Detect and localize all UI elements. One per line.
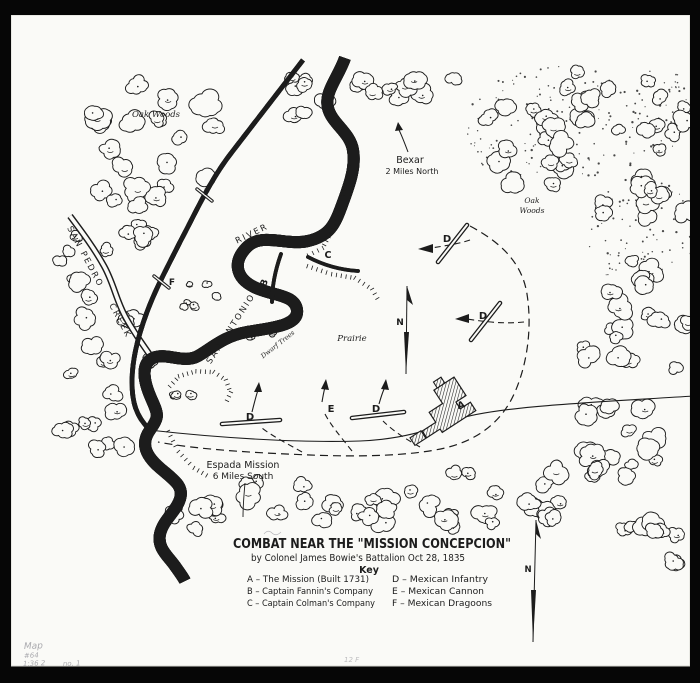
stipple-dot bbox=[558, 66, 559, 67]
stipple-dot bbox=[477, 151, 479, 153]
stipple-dot bbox=[649, 229, 651, 231]
tree-trunk-dot bbox=[619, 308, 621, 310]
tree-trunk-dot bbox=[206, 282, 208, 284]
tree-trunk-dot bbox=[647, 313, 649, 315]
tree-trunk-dot bbox=[304, 500, 306, 502]
tree-trunk-dot bbox=[592, 455, 594, 457]
map-scan: Oak Woods Oak Woods Bexar 2 Miles North … bbox=[0, 0, 700, 683]
key-item-d: D – Mexican Infantry bbox=[392, 575, 489, 585]
tree-blob bbox=[404, 485, 417, 498]
stipple-dot bbox=[540, 166, 542, 168]
tree-trunk-dot bbox=[552, 518, 554, 520]
stipple-dot bbox=[579, 132, 581, 134]
tree-trunk-dot bbox=[295, 85, 297, 87]
stipple-dot bbox=[632, 111, 634, 113]
stipple-dot bbox=[536, 76, 538, 78]
stipple-dot bbox=[671, 262, 672, 263]
tree-trunk-dot bbox=[382, 498, 384, 500]
stipple-dot bbox=[672, 191, 673, 192]
stipple-dot bbox=[496, 97, 497, 98]
stipple-dot bbox=[569, 107, 571, 109]
stipple-dot bbox=[682, 200, 684, 202]
stipple-dot bbox=[597, 171, 599, 173]
tree-trunk-dot bbox=[553, 183, 555, 185]
tree-blob bbox=[404, 72, 428, 90]
stipple-dot bbox=[474, 142, 475, 143]
stipple-dot bbox=[606, 274, 607, 275]
tree-trunk-dot bbox=[588, 357, 590, 359]
stipple-dot bbox=[537, 96, 538, 97]
tree-trunk-dot bbox=[484, 513, 486, 515]
stipple-dot bbox=[582, 166, 584, 168]
tree-trunk-dot bbox=[123, 446, 125, 448]
tree-trunk-dot bbox=[655, 126, 657, 128]
stipple-dot bbox=[636, 90, 638, 92]
tree-trunk-dot bbox=[110, 393, 112, 395]
stipple-dot bbox=[524, 76, 526, 78]
stipple-dot bbox=[547, 67, 549, 69]
stipple-dot bbox=[512, 80, 513, 81]
stipple-dot bbox=[641, 258, 643, 260]
stipple-dot bbox=[468, 127, 469, 128]
border-left bbox=[0, 0, 11, 683]
stipple-dot bbox=[625, 143, 627, 145]
tree-trunk-dot bbox=[659, 98, 661, 100]
tree-trunk-dot bbox=[677, 535, 679, 537]
tree-trunk-dot bbox=[70, 373, 72, 375]
stipple-dot bbox=[598, 162, 600, 164]
stipple-dot bbox=[489, 147, 490, 148]
stipple-dot bbox=[480, 138, 482, 140]
pencil-note-map: Map bbox=[24, 641, 44, 652]
pencil-note-no1: no. 1 bbox=[63, 659, 81, 668]
tree-trunk-dot bbox=[278, 513, 280, 515]
stipple-dot bbox=[537, 172, 538, 173]
marker-d2: D bbox=[479, 311, 487, 322]
tree-trunk-dot bbox=[492, 521, 494, 523]
stipple-dot bbox=[562, 99, 564, 101]
tree-blob bbox=[81, 337, 103, 355]
stipple-dot bbox=[615, 269, 616, 270]
stipple-dot bbox=[677, 74, 678, 75]
stipple-dot bbox=[622, 219, 624, 221]
stipple-dot bbox=[619, 262, 621, 264]
tree-trunk-dot bbox=[544, 483, 546, 485]
stipple-dot bbox=[565, 120, 567, 122]
tree-trunk-dot bbox=[84, 423, 86, 425]
border-top bbox=[0, 0, 700, 15]
tree-trunk-dot bbox=[364, 81, 366, 83]
stipple-dot bbox=[548, 85, 550, 87]
tree-trunk-dot bbox=[644, 409, 646, 411]
tree-trunk-dot bbox=[115, 199, 117, 201]
stipple-dot bbox=[661, 207, 663, 209]
stipple-dot bbox=[682, 247, 684, 249]
tree-trunk-dot bbox=[508, 150, 510, 152]
stipple-dot bbox=[602, 128, 604, 130]
tree-trunk-dot bbox=[683, 108, 685, 110]
tree-trunk-dot bbox=[672, 560, 674, 562]
tree-trunk-dot bbox=[686, 120, 688, 122]
stipple-dot bbox=[619, 201, 621, 203]
stipple-dot bbox=[650, 145, 652, 147]
stipple-dot bbox=[633, 153, 634, 154]
tree-trunk-dot bbox=[155, 197, 157, 199]
stipple-dot bbox=[625, 248, 626, 249]
stipple-dot bbox=[622, 199, 624, 201]
key-item-e: E – Mexican Cannon bbox=[392, 587, 484, 597]
stipple-dot bbox=[642, 241, 644, 243]
marker-e: E bbox=[328, 404, 335, 415]
stipple-dot bbox=[649, 71, 650, 72]
stipple-dot bbox=[662, 230, 664, 232]
tree-trunk-dot bbox=[97, 449, 99, 451]
marker-d1: D bbox=[443, 234, 451, 245]
tree-blob bbox=[202, 281, 212, 288]
stipple-dot bbox=[675, 86, 676, 87]
stipple-dot bbox=[675, 74, 677, 76]
stipple-dot bbox=[679, 194, 680, 195]
stipple-dot bbox=[661, 182, 663, 184]
stipple-dot bbox=[603, 154, 604, 155]
stipple-dot bbox=[598, 109, 599, 110]
tree-trunk-dot bbox=[166, 162, 168, 164]
tree-trunk-dot bbox=[137, 86, 139, 88]
stipple-dot bbox=[609, 115, 611, 117]
stipple-dot bbox=[618, 252, 620, 254]
tree-trunk-dot bbox=[94, 422, 96, 424]
tree-trunk-dot bbox=[583, 346, 585, 348]
stipple-dot bbox=[608, 263, 610, 265]
stipple-dot bbox=[520, 73, 522, 75]
stipple-dot bbox=[589, 159, 590, 160]
stipple-dot bbox=[479, 98, 481, 100]
stipple-dot bbox=[634, 112, 636, 114]
stipple-dot bbox=[626, 105, 628, 107]
stipple-dot bbox=[539, 89, 540, 90]
tree-trunk-dot bbox=[215, 518, 217, 520]
tree-trunk-dot bbox=[654, 459, 656, 461]
tree-trunk-dot bbox=[651, 190, 653, 192]
stipple-dot bbox=[524, 143, 525, 144]
stipple-dot bbox=[628, 199, 630, 201]
tree-trunk-dot bbox=[180, 136, 182, 138]
tree-blob bbox=[190, 302, 199, 310]
stipple-dot bbox=[556, 110, 558, 112]
stipple-dot bbox=[594, 174, 596, 176]
stipple-dot bbox=[553, 87, 555, 89]
tree-blob bbox=[186, 282, 192, 287]
tree-trunk-dot bbox=[193, 304, 195, 306]
tree-trunk-dot bbox=[86, 317, 88, 319]
oak-woods-left-label: Oak Woods bbox=[132, 110, 181, 120]
stipple-dot bbox=[530, 134, 532, 136]
stipple-dot bbox=[482, 164, 484, 166]
stipple-dot bbox=[656, 239, 657, 240]
stipple-dot bbox=[607, 191, 609, 193]
tree-trunk-dot bbox=[102, 190, 104, 192]
stipple-dot bbox=[678, 90, 680, 92]
stipple-dot bbox=[647, 253, 649, 255]
tree-trunk-dot bbox=[467, 473, 469, 475]
stipple-dot bbox=[597, 225, 599, 227]
stipple-dot bbox=[668, 185, 670, 187]
prairie-label: Prairie bbox=[336, 334, 366, 344]
stipple-dot bbox=[513, 83, 514, 84]
stipple-dot bbox=[584, 82, 586, 84]
stipple-dot bbox=[638, 93, 640, 95]
tree-trunk-dot bbox=[136, 224, 138, 226]
marker-f2: F bbox=[169, 278, 175, 288]
stipple-dot bbox=[666, 105, 667, 106]
stipple-dot bbox=[535, 144, 536, 145]
stipple-dot bbox=[526, 162, 527, 163]
stipple-dot bbox=[675, 81, 676, 82]
stipple-dot bbox=[511, 124, 513, 126]
stipple-dot bbox=[477, 130, 478, 131]
tree-trunk-dot bbox=[167, 99, 169, 101]
tree-trunk-dot bbox=[545, 115, 547, 117]
tree-trunk-dot bbox=[385, 522, 387, 524]
stipple-dot bbox=[682, 242, 684, 244]
tree-trunk-dot bbox=[533, 108, 535, 110]
stipple-dot bbox=[516, 75, 518, 77]
stipple-dot bbox=[624, 91, 626, 93]
tree-trunk-dot bbox=[495, 494, 497, 496]
stipple-dot bbox=[550, 97, 551, 98]
pencil-note-scale: 1:36 2 bbox=[23, 659, 46, 668]
stipple-dot bbox=[675, 231, 677, 233]
stipple-dot bbox=[481, 151, 482, 152]
stipple-dot bbox=[646, 236, 648, 238]
stipple-dot bbox=[671, 87, 672, 88]
stipple-dot bbox=[598, 118, 599, 119]
stipple-dot bbox=[626, 203, 628, 205]
tree-trunk-dot bbox=[548, 139, 550, 141]
tree-trunk-dot bbox=[398, 97, 400, 99]
tree-trunk-dot bbox=[177, 393, 179, 395]
tree-trunk-dot bbox=[303, 486, 305, 488]
stipple-dot bbox=[669, 91, 671, 93]
tree-trunk-dot bbox=[321, 518, 323, 520]
key-item-b: B – Captain Fannin's Company bbox=[247, 587, 374, 597]
tree-blob bbox=[296, 106, 312, 118]
tree-trunk-dot bbox=[562, 165, 564, 167]
tree-trunk-dot bbox=[444, 519, 446, 521]
stipple-dot bbox=[620, 239, 622, 241]
north-letter-center: N bbox=[396, 318, 404, 328]
tree-trunk-dot bbox=[560, 503, 562, 505]
tree-trunk-dot bbox=[128, 233, 130, 235]
stipple-dot bbox=[643, 259, 645, 261]
stipple-dot bbox=[592, 81, 594, 83]
tree-trunk-dot bbox=[615, 335, 617, 337]
key-item-c: C – Captain Colman's Company bbox=[247, 599, 376, 609]
stipple-dot bbox=[550, 99, 552, 101]
stipple-dot bbox=[629, 225, 630, 226]
stipple-dot bbox=[481, 163, 483, 165]
stipple-dot bbox=[662, 251, 664, 253]
stipple-dot bbox=[672, 111, 674, 113]
key-item-a: A – The Mission (Built 1731) bbox=[247, 575, 369, 585]
stipple-dot bbox=[591, 216, 593, 218]
stipple-dot bbox=[597, 85, 598, 86]
oak-woods-right-label-1: Oak bbox=[524, 196, 540, 205]
tree-trunk-dot bbox=[414, 80, 416, 82]
tree-trunk-dot bbox=[617, 357, 619, 359]
stipple-dot bbox=[626, 242, 628, 244]
tree-trunk-dot bbox=[422, 95, 424, 97]
tree-blob bbox=[212, 293, 221, 301]
stipple-dot bbox=[678, 86, 679, 87]
tree-trunk-dot bbox=[143, 233, 145, 235]
tree-trunk-dot bbox=[62, 430, 64, 432]
stipple-dot bbox=[531, 149, 533, 151]
tree-trunk-dot bbox=[645, 284, 647, 286]
border-bottom bbox=[0, 667, 700, 683]
tree-trunk-dot bbox=[609, 292, 611, 294]
marker-d4: D bbox=[372, 404, 380, 415]
tree-trunk-dot bbox=[369, 515, 371, 517]
stipple-dot bbox=[644, 106, 645, 107]
stipple-dot bbox=[629, 164, 631, 166]
stipple-dot bbox=[528, 163, 529, 164]
stipple-dot bbox=[661, 140, 662, 141]
tree-trunk-dot bbox=[427, 502, 429, 504]
tree-trunk-dot bbox=[498, 161, 500, 163]
stipple-dot bbox=[531, 157, 533, 159]
tree-blob bbox=[157, 153, 176, 174]
tree-trunk-dot bbox=[304, 81, 306, 83]
stipple-dot bbox=[582, 173, 583, 174]
marker-d3: D bbox=[246, 412, 254, 423]
stipple-dot bbox=[593, 143, 595, 145]
tree-trunk-dot bbox=[674, 131, 676, 133]
tree-trunk-dot bbox=[92, 112, 94, 114]
stipple-dot bbox=[491, 144, 493, 146]
stipple-dot bbox=[664, 82, 665, 83]
stipple-dot bbox=[672, 146, 673, 147]
border-right bbox=[690, 0, 700, 683]
tree-trunk-dot bbox=[621, 326, 623, 328]
stipple-dot bbox=[625, 141, 627, 143]
north-letter-bottom: N bbox=[524, 565, 531, 575]
oak-woods-right-label-2: Woods bbox=[520, 206, 545, 215]
stipple-dot bbox=[620, 92, 622, 94]
stipple-dot bbox=[496, 140, 498, 142]
stipple-dot bbox=[467, 133, 468, 134]
tree-trunk-dot bbox=[661, 318, 663, 320]
stipple-dot bbox=[561, 111, 563, 113]
stipple-dot bbox=[589, 246, 590, 247]
stipple-dot bbox=[591, 229, 592, 230]
stipple-dot bbox=[618, 255, 620, 257]
stipple-dot bbox=[612, 217, 614, 219]
stipple-dot bbox=[677, 82, 679, 84]
stipple-dot bbox=[607, 274, 608, 275]
tree-trunk-dot bbox=[110, 360, 112, 362]
tree-blob bbox=[312, 513, 332, 528]
stipple-dot bbox=[653, 234, 655, 236]
stipple-dot bbox=[609, 268, 611, 270]
stipple-dot bbox=[471, 103, 473, 105]
tree-trunk-dot bbox=[528, 503, 530, 505]
stipple-dot bbox=[612, 269, 613, 270]
stipple-dot bbox=[579, 153, 580, 154]
stipple-dot bbox=[643, 150, 645, 152]
stipple-dot bbox=[624, 179, 626, 181]
espada-label-2: 6 Miles South bbox=[213, 472, 274, 482]
stipple-dot bbox=[629, 136, 631, 138]
stipple-dot bbox=[502, 90, 503, 91]
stipple-dot bbox=[665, 119, 667, 121]
stipple-dot bbox=[594, 70, 596, 72]
stipple-dot bbox=[642, 252, 643, 253]
stipple-dot bbox=[497, 80, 499, 82]
stipple-dot bbox=[540, 68, 542, 70]
tree-trunk-dot bbox=[356, 513, 358, 515]
tree-trunk-dot bbox=[409, 489, 411, 491]
tree-blob bbox=[571, 65, 585, 79]
marker-c: C bbox=[325, 250, 332, 261]
tree-trunk-dot bbox=[200, 508, 202, 510]
stipple-dot bbox=[502, 81, 504, 83]
stipple-dot bbox=[613, 154, 615, 156]
tree-trunk-dot bbox=[490, 117, 492, 119]
tree-blob bbox=[180, 303, 188, 310]
tree-trunk-dot bbox=[190, 393, 192, 395]
tree-trunk-dot bbox=[89, 296, 91, 298]
stipple-dot bbox=[641, 99, 643, 101]
espada-label-1: Espada Mission bbox=[207, 460, 280, 471]
stipple-dot bbox=[470, 143, 472, 145]
tree-trunk-dot bbox=[214, 503, 216, 505]
stipple-dot bbox=[646, 115, 648, 117]
tree-trunk-dot bbox=[295, 116, 297, 118]
stipple-dot bbox=[610, 254, 611, 255]
tree-trunk-dot bbox=[641, 185, 643, 187]
stipple-dot bbox=[533, 145, 535, 147]
stipple-dot bbox=[587, 174, 589, 176]
stipple-dot bbox=[492, 147, 494, 149]
stipple-dot bbox=[673, 218, 675, 220]
bexar-label-1: Bexar bbox=[396, 155, 424, 166]
stipple-dot bbox=[608, 119, 610, 121]
stipple-dot bbox=[587, 157, 589, 159]
marker-f1: F bbox=[204, 188, 210, 198]
stipple-dot bbox=[652, 251, 653, 252]
tree-trunk-dot bbox=[658, 150, 660, 152]
stipple-dot bbox=[669, 249, 671, 251]
tree-blob bbox=[445, 73, 462, 85]
stipple-dot bbox=[635, 219, 637, 221]
bexar-label-2: 2 Miles North bbox=[386, 167, 439, 176]
stipple-dot bbox=[576, 144, 578, 146]
pencil-note-center: 12 F bbox=[344, 656, 360, 664]
tree-trunk-dot bbox=[585, 413, 587, 415]
map-subtitle: by Colonel James Bowie's Battalion Oct 2… bbox=[251, 553, 465, 564]
map-title: COMBAT NEAR THE "MISSION CONCEPCION" bbox=[233, 536, 511, 552]
stipple-dot bbox=[631, 121, 633, 123]
stipple-dot bbox=[634, 103, 636, 105]
stipple-dot bbox=[525, 150, 527, 152]
stipple-dot bbox=[517, 120, 519, 122]
tree-trunk-dot bbox=[602, 212, 604, 214]
tree-trunk-dot bbox=[108, 147, 110, 149]
key-item-f: F – Mexican Dragoons bbox=[392, 599, 492, 609]
stipple-dot bbox=[608, 112, 610, 114]
tree-blob bbox=[189, 497, 213, 518]
